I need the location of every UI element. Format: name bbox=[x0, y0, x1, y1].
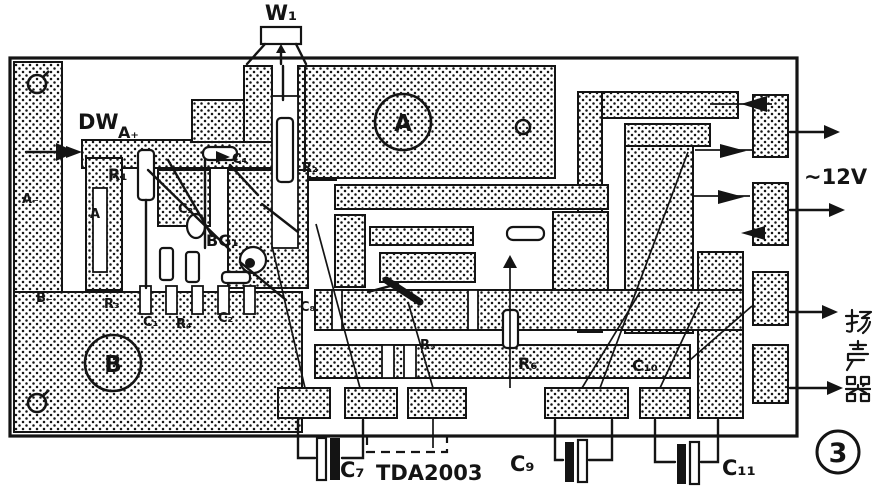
label-a-plus: A₊ bbox=[118, 123, 139, 142]
figure-number: 3 bbox=[829, 438, 848, 469]
band-cut-1 bbox=[332, 290, 342, 330]
label-r5: R₅ bbox=[420, 338, 436, 353]
label-w1: W₁ bbox=[265, 1, 297, 25]
terminal-arrow-3-icon bbox=[822, 305, 838, 319]
copper-mid-trace bbox=[335, 185, 608, 209]
label-hole-b: B bbox=[104, 352, 122, 378]
label-c3: C₃ bbox=[178, 202, 193, 217]
tda2003-outline bbox=[367, 436, 447, 452]
band-slot-2 bbox=[404, 345, 416, 378]
label-bg1: BG₁ bbox=[206, 231, 238, 250]
figure-number-badge: 3 bbox=[817, 431, 859, 473]
band-cut-2 bbox=[468, 290, 478, 330]
label-c9: C₉ bbox=[510, 452, 535, 476]
copper-mid-center-block bbox=[380, 253, 475, 282]
label-dw: DW bbox=[78, 110, 119, 134]
label-a-minus: A₋ bbox=[22, 192, 39, 207]
resistor-r2 bbox=[277, 118, 293, 182]
terminal-arrow-4-icon bbox=[827, 381, 843, 395]
lead-slot-1 bbox=[140, 286, 151, 314]
edge-pad-3 bbox=[753, 272, 788, 325]
copper-right-col bbox=[698, 252, 743, 418]
label-supply-12v: ~12V bbox=[804, 165, 868, 189]
label-c1: C₁ bbox=[143, 315, 158, 330]
c11-plate-pos bbox=[677, 444, 686, 484]
label-b-minus: B₋ bbox=[36, 291, 53, 306]
lead-slot-3 bbox=[192, 286, 203, 314]
edge-pad-4 bbox=[753, 345, 788, 403]
speaker-char-sheng bbox=[847, 341, 868, 370]
c7-plate-neg bbox=[317, 438, 326, 480]
label-c11: C₁₁ bbox=[722, 456, 756, 480]
jumper-pill bbox=[507, 227, 544, 240]
label-r1: R₁ bbox=[108, 165, 127, 184]
label-r3: R₃ bbox=[104, 297, 120, 312]
label-hole-a: A bbox=[394, 111, 412, 137]
copper-left-strip bbox=[14, 62, 62, 294]
cluster-slot bbox=[93, 188, 107, 272]
copper-mid-left-block bbox=[335, 215, 365, 287]
label-tda2003: TDA2003 bbox=[376, 461, 482, 485]
label-r4: R₄ bbox=[176, 317, 192, 332]
copper-mid-right-block bbox=[553, 212, 608, 290]
c9-plate-neg bbox=[578, 440, 587, 482]
pcb-diagram: 3 W₁ DW A₊ R₁ C₄ C₃ BG₁ R₂ A A B A₋ B₋ R… bbox=[0, 0, 877, 494]
lead-slot-4 bbox=[218, 286, 229, 314]
small-part-2 bbox=[186, 252, 199, 282]
copper-inner-bar bbox=[625, 124, 710, 146]
label-c4: C₄ bbox=[232, 152, 248, 167]
terminal-arrow-2-icon bbox=[829, 203, 845, 217]
speaker-char-yang bbox=[846, 310, 871, 333]
c11-plate-neg bbox=[690, 442, 699, 484]
potentiometer-w1-body bbox=[261, 27, 301, 44]
c7-plate-pos bbox=[330, 438, 340, 480]
c9-plate-pos bbox=[565, 442, 574, 482]
small-part-1 bbox=[160, 248, 173, 280]
label-r2: R₂ bbox=[302, 161, 318, 176]
label-c10: C₁₀ bbox=[632, 356, 658, 375]
small-part-3 bbox=[222, 272, 250, 283]
ic-pad-4 bbox=[545, 388, 628, 418]
ic-pad-3 bbox=[408, 388, 466, 418]
label-r6: R₆ bbox=[518, 354, 537, 373]
ic-pad-2 bbox=[345, 388, 397, 418]
copper-mid-center-bar bbox=[370, 227, 473, 245]
pcb-layout-figure: 扬声器 bbox=[0, 0, 877, 494]
lead-slot-2 bbox=[166, 286, 177, 314]
label-c2: C₂ bbox=[218, 311, 233, 326]
copper-step bbox=[192, 100, 250, 142]
speaker-char-qi bbox=[846, 377, 870, 401]
copper-bottom-left-block bbox=[14, 292, 302, 432]
label-c7: C₇ bbox=[340, 458, 365, 482]
w1-wiper-arrow-icon bbox=[276, 44, 286, 53]
lead-slot-5 bbox=[244, 286, 255, 314]
copper-w1-wing-left bbox=[244, 66, 272, 142]
ic-pad-1 bbox=[278, 388, 330, 418]
terminal-arrow-1-icon bbox=[824, 125, 840, 139]
ic-pad-5 bbox=[640, 388, 690, 418]
speaker-label-glyphs bbox=[846, 310, 871, 401]
label-c8: C₈ bbox=[300, 300, 316, 315]
copper-upper-band bbox=[315, 290, 743, 330]
label-cluster-a: A bbox=[90, 207, 100, 222]
band-slot-1 bbox=[382, 345, 394, 378]
